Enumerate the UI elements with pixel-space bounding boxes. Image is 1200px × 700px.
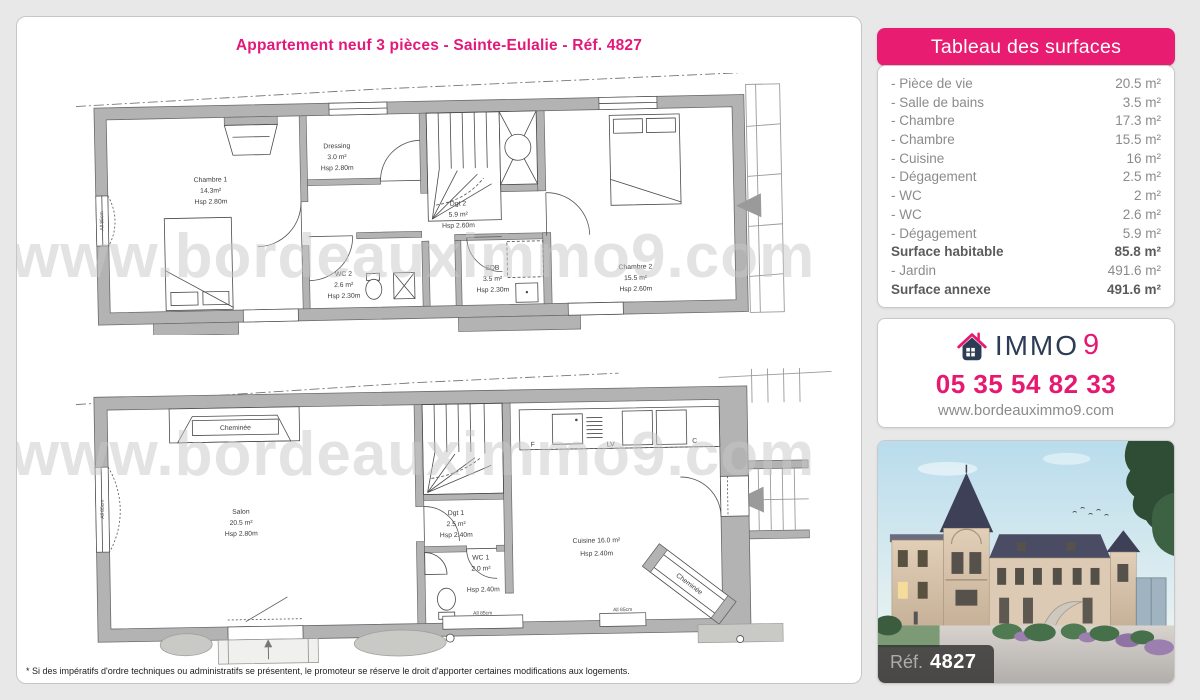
property-photo[interactable]: Réf. 4827 [877, 440, 1175, 684]
surface-value: 491.6 m² [1107, 281, 1161, 300]
surface-value: 20.5 m² [1115, 75, 1161, 94]
svg-text:Cuisine 16.0 m²: Cuisine 16.0 m² [573, 537, 621, 545]
svg-text:20.5 m²: 20.5 m² [230, 520, 254, 527]
svg-text:LV: LV [607, 441, 615, 448]
disclaimer-text: * Si des impératifs d'ordre techniques o… [26, 666, 630, 676]
svg-text:All 85cm: All 85cm [473, 610, 492, 616]
svg-text:14.3m²: 14.3m² [200, 187, 222, 194]
agency-card: IMMO9 05 35 54 82 33 www.bordeauximmo9.c… [877, 318, 1175, 428]
surface-row: - Cuisine16 m² [891, 150, 1161, 169]
surface-value: 2.6 m² [1123, 206, 1161, 225]
svg-text:All 85cm: All 85cm [613, 607, 632, 613]
chimney-shaft-icon [499, 111, 538, 185]
svg-text:All 85cm: All 85cm [99, 211, 105, 230]
window-left: All 85cm [95, 467, 121, 552]
svg-text:All 85cm: All 85cm [100, 500, 106, 519]
door-arcs [423, 476, 750, 580]
svg-text:Hsp 2.80m: Hsp 2.80m [225, 530, 258, 538]
surface-label: - Salle de bains [891, 94, 984, 113]
svg-text:C: C [692, 438, 697, 445]
window-left: All 85cm [96, 196, 116, 246]
surface-label: - Chambre [891, 131, 955, 150]
svg-text:15.5 m²: 15.5 m² [624, 275, 648, 282]
surface-label: - Dégagement [891, 225, 977, 244]
svg-text:F: F [531, 442, 535, 449]
svg-text:Salon: Salon [232, 509, 250, 516]
surface-row: - Chambre15.5 m² [891, 131, 1161, 150]
surface-label: - Cuisine [891, 150, 944, 169]
svg-text:Chambre 1: Chambre 1 [194, 176, 228, 184]
surface-value: 491.6 m² [1108, 262, 1161, 281]
surface-label: - Pièce de vie [891, 75, 973, 94]
surface-value: 2.5 m² [1123, 168, 1161, 187]
surface-value: 17.3 m² [1115, 112, 1161, 131]
svg-text:Cheminée: Cheminée [220, 425, 251, 433]
surface-label: Surface habitable [891, 243, 1004, 262]
surface-value: 3.5 m² [1123, 94, 1161, 113]
surface-value: 15.5 m² [1115, 131, 1161, 150]
surface-label: - WC [891, 187, 922, 206]
surface-value: 2 m² [1134, 187, 1161, 206]
surface-row: - Jardin491.6 m² [891, 262, 1161, 281]
surface-row-total-annexe: Surface annexe491.6 m² [891, 281, 1161, 300]
surface-row: - Chambre17.3 m² [891, 112, 1161, 131]
ref-badge: Réf. 4827 [878, 645, 994, 683]
surface-value: 16 m² [1126, 150, 1161, 169]
immo9-logo: IMMO9 [953, 328, 1099, 364]
svg-text:5.9 m²: 5.9 m² [449, 211, 469, 218]
bed-icon-chambre1 [164, 217, 233, 310]
svg-text:3.0 m²: 3.0 m² [327, 154, 347, 161]
ref-number: 4827 [930, 651, 977, 674]
surfaces-table: - Pièce de vie20.5 m² - Salle de bains3.… [877, 65, 1175, 308]
svg-text:Hsp 2.60m: Hsp 2.60m [619, 285, 652, 293]
surface-row: - Salle de bains3.5 m² [891, 94, 1161, 113]
svg-text:2.6 m²: 2.6 m² [334, 282, 354, 289]
svg-text:Hsp 2.60m: Hsp 2.60m [442, 222, 475, 230]
surface-row: - Dégagement2.5 m² [891, 168, 1161, 187]
surface-label: Surface annexe [891, 281, 991, 300]
ref-label: Réf. [890, 652, 923, 673]
svg-text:Dgt 1: Dgt 1 [448, 510, 465, 517]
fireplace-icon [224, 116, 278, 155]
surface-row: - WC2 m² [891, 187, 1161, 206]
surface-label: - Chambre [891, 112, 955, 131]
svg-text:Hsp 2.40m: Hsp 2.40m [467, 586, 500, 594]
svg-text:Hsp 2.40m: Hsp 2.40m [440, 532, 473, 540]
floor-plan-lower: Cheminée [76, 366, 836, 666]
svg-text:Dgt 2: Dgt 2 [450, 200, 467, 207]
surface-value: 5.9 m² [1123, 225, 1161, 244]
svg-text:Chambre 2: Chambre 2 [619, 263, 653, 271]
surface-value: 85.8 m² [1114, 243, 1161, 262]
surface-row-total-habitable: Surface habitable85.8 m² [891, 243, 1161, 262]
svg-text:Hsp 2.80m: Hsp 2.80m [194, 198, 227, 206]
fireplace-salon: Cheminée [169, 407, 300, 443]
svg-text:SDB: SDB [485, 265, 500, 272]
phone-number[interactable]: 05 35 54 82 33 [936, 369, 1117, 400]
surface-row: - Dégagement5.9 m² [891, 225, 1161, 244]
svg-text:Hsp 2.80m: Hsp 2.80m [321, 165, 354, 173]
bed-icon-chambre2 [609, 114, 681, 205]
svg-text:Hsp 2.30m: Hsp 2.30m [476, 286, 509, 294]
floor-plan-upper: All 85cm [76, 73, 796, 335]
floor-plan-card: Appartement neuf 3 pièces - Sainte-Eulal… [16, 16, 862, 684]
svg-text:WC 1: WC 1 [472, 554, 489, 561]
svg-text:Dressing: Dressing [323, 143, 350, 151]
surface-label: - Jardin [891, 262, 936, 281]
svg-text:2.5 m²: 2.5 m² [446, 521, 466, 528]
toilet-icon-wc1 [425, 552, 456, 620]
shower-icon-sdb [507, 241, 544, 303]
surfaces-table-header: Tableau des surfaces [877, 28, 1175, 66]
website-link[interactable]: www.bordeauximmo9.com [938, 402, 1114, 419]
svg-text:Hsp 2.30m: Hsp 2.30m [327, 293, 360, 301]
brand-9: 9 [1083, 329, 1099, 362]
svg-text:3.5 m²: 3.5 m² [483, 276, 503, 283]
surface-row: - WC2.6 m² [891, 206, 1161, 225]
surface-label: - Dégagement [891, 168, 977, 187]
surface-row: - Pièce de vie20.5 m² [891, 75, 1161, 94]
brand-immo: IMMO [995, 330, 1079, 362]
svg-text:2.0 m²: 2.0 m² [471, 565, 491, 572]
surface-label: - WC [891, 206, 922, 225]
house-icon [953, 328, 991, 364]
svg-text:Hsp 2.40m: Hsp 2.40m [580, 550, 613, 558]
kitchen-counter: F LV C [519, 406, 720, 449]
svg-text:WC 2: WC 2 [335, 271, 352, 278]
page-title: Appartement neuf 3 pièces - Sainte-Eulal… [17, 37, 861, 55]
staircase-icon [422, 403, 504, 494]
toilet-icon-wc2 [365, 272, 415, 299]
